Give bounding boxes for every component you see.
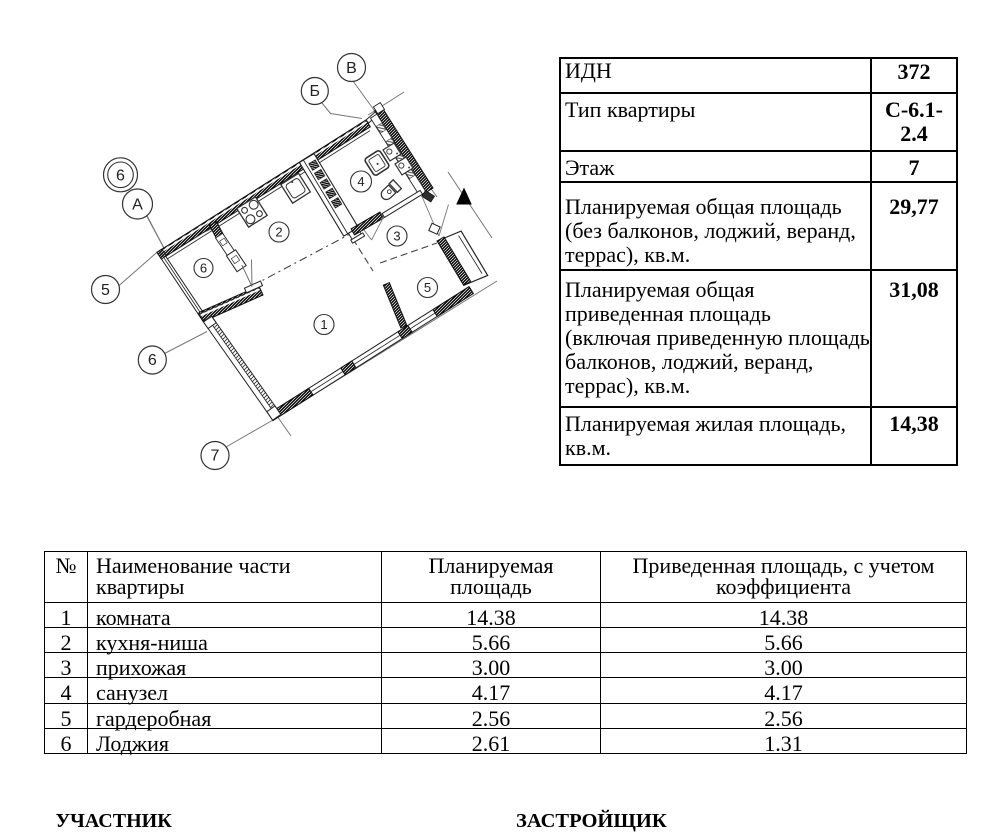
svg-text:6: 6 — [200, 261, 207, 276]
svg-text:6: 6 — [116, 167, 125, 184]
svg-text:5: 5 — [424, 280, 431, 295]
svg-text:3: 3 — [393, 229, 400, 244]
svg-text:2: 2 — [275, 225, 282, 240]
svg-text:В: В — [346, 60, 357, 77]
svg-text:7: 7 — [211, 448, 220, 465]
svg-text:Б: Б — [310, 83, 321, 100]
svg-text:5: 5 — [101, 282, 110, 299]
svg-text:А: А — [132, 197, 143, 214]
svg-text:4: 4 — [357, 174, 364, 189]
svg-text:1: 1 — [320, 317, 327, 332]
svg-text:6: 6 — [148, 352, 157, 369]
